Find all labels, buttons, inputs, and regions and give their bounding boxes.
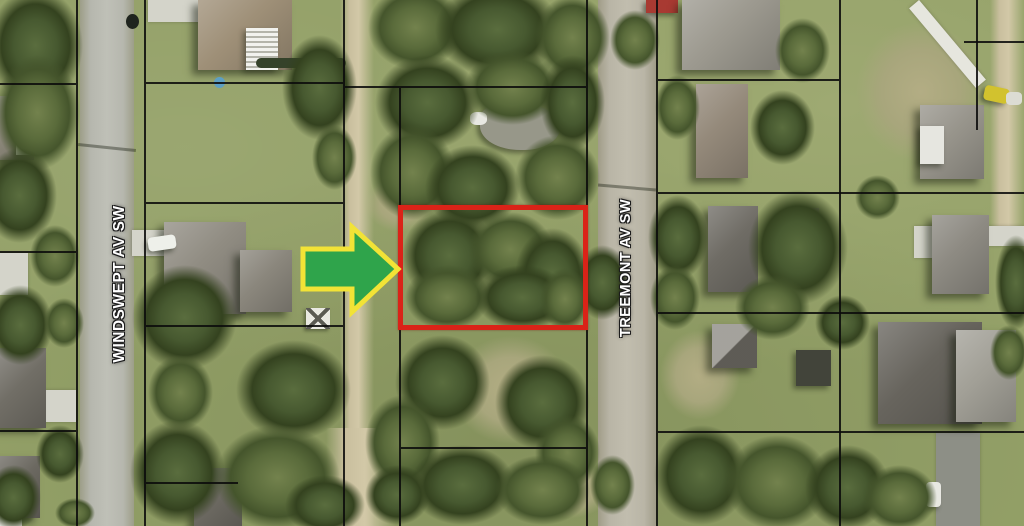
tree-canopy: [815, 295, 870, 350]
building-roof: [240, 250, 292, 312]
tree-canopy: [655, 75, 700, 140]
parcel-highlight-box: [398, 205, 588, 330]
walkway: [914, 226, 934, 258]
street-label-treemont: TREEMONT AV SW: [616, 198, 636, 338]
tree-canopy: [750, 90, 815, 165]
tree-canopy: [862, 465, 937, 526]
parcel-line: [76, 0, 78, 526]
parcel-line: [0, 251, 76, 253]
parcel-line: [146, 325, 343, 327]
parcel-line: [658, 431, 1024, 433]
tree-canopy: [495, 455, 590, 525]
tree-canopy: [55, 498, 95, 526]
parcel-line: [658, 312, 1024, 314]
tree-canopy: [610, 10, 660, 70]
parcel-line: [345, 86, 586, 88]
parcel-line: [658, 79, 839, 81]
driveway: [148, 0, 202, 22]
parcel-line: [839, 0, 841, 526]
pointer-arrow-icon: [296, 220, 404, 318]
tree-canopy: [995, 235, 1024, 330]
parcel-line: [658, 192, 1024, 194]
tree-canopy: [44, 298, 84, 348]
building-roof: [682, 0, 780, 70]
driveway: [936, 433, 980, 526]
tree-canopy: [132, 265, 237, 370]
object-on-road: [126, 14, 139, 29]
parcel-line: [144, 0, 146, 526]
parcel-line: [976, 0, 978, 130]
object: [1006, 92, 1022, 105]
tree-canopy: [775, 18, 830, 83]
tree-canopy: [855, 175, 900, 220]
tree-canopy: [30, 225, 80, 287]
driveway: [44, 390, 76, 422]
parcel-line: [146, 482, 238, 484]
parcel-line: [0, 430, 76, 432]
parcel-line: [146, 82, 343, 84]
parcel-line: [146, 202, 343, 204]
tree-canopy: [735, 275, 810, 340]
building-roof: [920, 126, 944, 164]
shed: [796, 350, 831, 386]
tree-canopy: [365, 465, 430, 525]
dirt-trail: [990, 0, 1024, 235]
tree-canopy: [990, 325, 1024, 380]
building-roof: [646, 0, 678, 13]
tree-canopy: [590, 455, 635, 515]
building-roof: [696, 84, 748, 178]
tree-canopy: [285, 475, 365, 526]
parcel-line: [0, 83, 76, 85]
building-roof: [932, 215, 989, 294]
tree-canopy: [312, 125, 357, 190]
parcel-line: [401, 447, 586, 449]
tree-canopy: [236, 340, 351, 440]
street-label-windswept: WINDSWEPT AV SW: [110, 199, 130, 369]
tree-canopy: [148, 355, 213, 430]
aerial-map: WINDSWEPT AV SW TREEMONT AV SW: [0, 0, 1024, 526]
parcel-line: [964, 41, 1024, 43]
